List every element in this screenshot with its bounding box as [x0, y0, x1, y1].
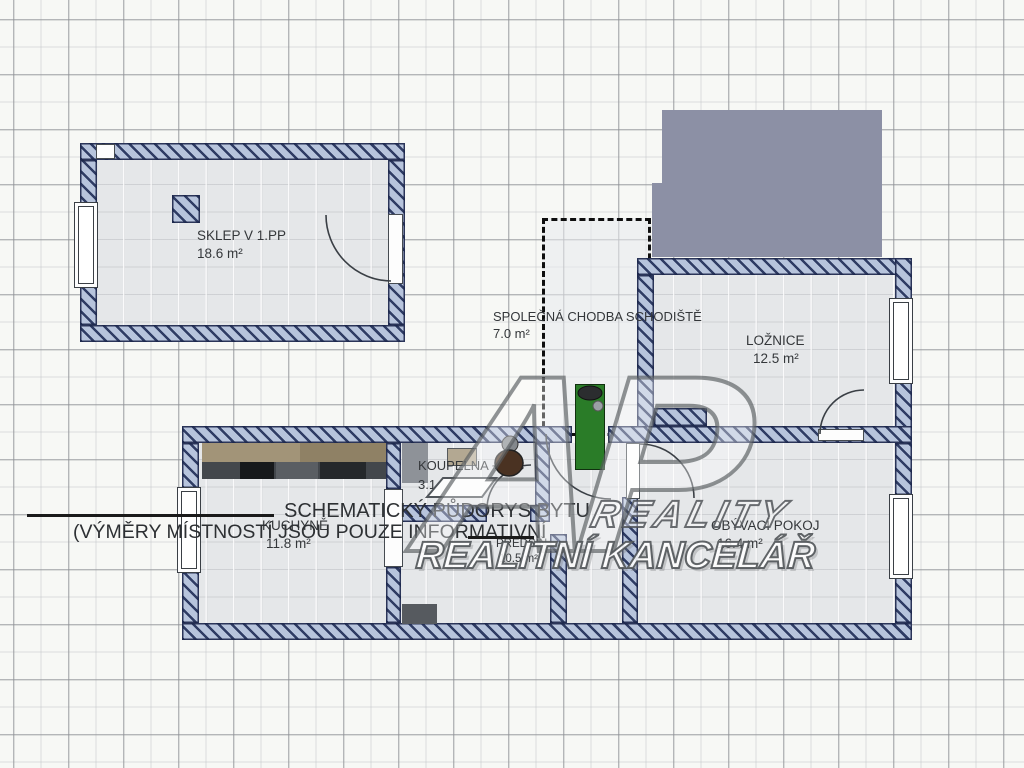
- bedroom-wall-left: [637, 275, 654, 443]
- note-title: SCHEMATICKÝ PŮDORYS BYTU: [284, 500, 590, 523]
- label-bathroom-name: KOUPELNA + WC: [418, 457, 525, 476]
- note-underline-left: [27, 514, 274, 517]
- kitchen-stove-unit: [320, 462, 366, 479]
- label-corridor-name: SPOLEČNÁ CHODBA SCHODIŠTĚ: [493, 309, 702, 326]
- note-underline-right: [468, 536, 534, 539]
- kitchen-counter-top-right: [300, 443, 386, 462]
- bedroom-window-pane: [893, 302, 909, 380]
- kitchen-worktop-unit: [276, 462, 318, 479]
- hall-livingroom-wall: [622, 497, 638, 623]
- label-bedroom-name: LOŽNICE: [746, 332, 805, 350]
- staircase-mass-block: [662, 110, 882, 257]
- washing-machine: [402, 604, 437, 624]
- bedroom-window: [889, 298, 913, 384]
- bathroom-wall-right: [535, 443, 550, 506]
- kitchen-sink-unit: [240, 462, 274, 479]
- apartment-wall-right-upper: [895, 443, 912, 495]
- label-livingroom: OBÝVACÍ POKOJ 16.4 m²: [711, 517, 820, 552]
- cellar-window-pane: [78, 206, 94, 284]
- label-bathroom-area: 3.1 m²: [418, 476, 525, 495]
- livingroom-window: [889, 494, 913, 579]
- label-cellar: SKLEP V 1.PP 18.6 m²: [197, 227, 286, 262]
- livingroom-window-pane: [893, 498, 909, 575]
- cellar-top-wall-gap: [96, 144, 115, 159]
- label-bedroom-area: 12.5 m²: [753, 350, 805, 368]
- staircase-mass-block-notch: [652, 183, 662, 257]
- hall-divider-wall: [550, 534, 567, 623]
- label-livingroom-area: 16.4 m²: [717, 535, 820, 553]
- cellar-door-leaf: [388, 214, 403, 284]
- label-livingroom-name: OBÝVACÍ POKOJ: [711, 517, 820, 535]
- livingroom-door-leaf: [626, 443, 640, 499]
- label-corridor-area: 7.0 m²: [493, 326, 702, 343]
- label-cellar-area: 18.6 m²: [197, 245, 286, 263]
- apartment-wall-top-right: [608, 426, 912, 443]
- bedroom-wall-right-upper: [895, 258, 912, 300]
- label-corridor: SPOLEČNÁ CHODBA SCHODIŠTĚ 7.0 m²: [493, 309, 702, 343]
- label-bathroom: KOUPELNA + WC 3.1 m²: [418, 457, 525, 495]
- note-disclaimer: (VÝMĚRY MÍSTNOSTÍ JSOU POUZE INFORMATIVN…: [73, 521, 546, 544]
- cellar-window: [74, 202, 98, 288]
- entrance-door-green: [575, 384, 605, 470]
- cellar-wall-bottom: [80, 325, 405, 342]
- apartment-wall-left-lower: [182, 572, 199, 623]
- label-cellar-name: SKLEP V 1.PP: [197, 227, 286, 245]
- kitchen-bathroom-wall-lower: [386, 567, 401, 623]
- apartment-wall-left-upper: [182, 443, 199, 488]
- label-bedroom: LOŽNICE 12.5 m²: [746, 332, 805, 367]
- apartment-wall-top-left: [182, 426, 572, 443]
- bedroom-wall-top: [637, 258, 912, 275]
- bedroom-wall-nook: [654, 408, 707, 426]
- cellar-wall-top: [80, 143, 405, 160]
- apartment-wall-right-lower: [895, 577, 912, 623]
- cellar-pillar: [172, 195, 200, 223]
- bedroom-door-leaf: [818, 429, 864, 441]
- floorplan-canvas: SKLEP V 1.PP 18.6 m² SPOLEČNÁ CHODBA SCH…: [0, 0, 1024, 768]
- kitchen-bathroom-wall-upper: [386, 443, 401, 489]
- apartment-wall-bottom: [182, 623, 912, 640]
- label-hall-area: 10.5 m²: [499, 552, 547, 567]
